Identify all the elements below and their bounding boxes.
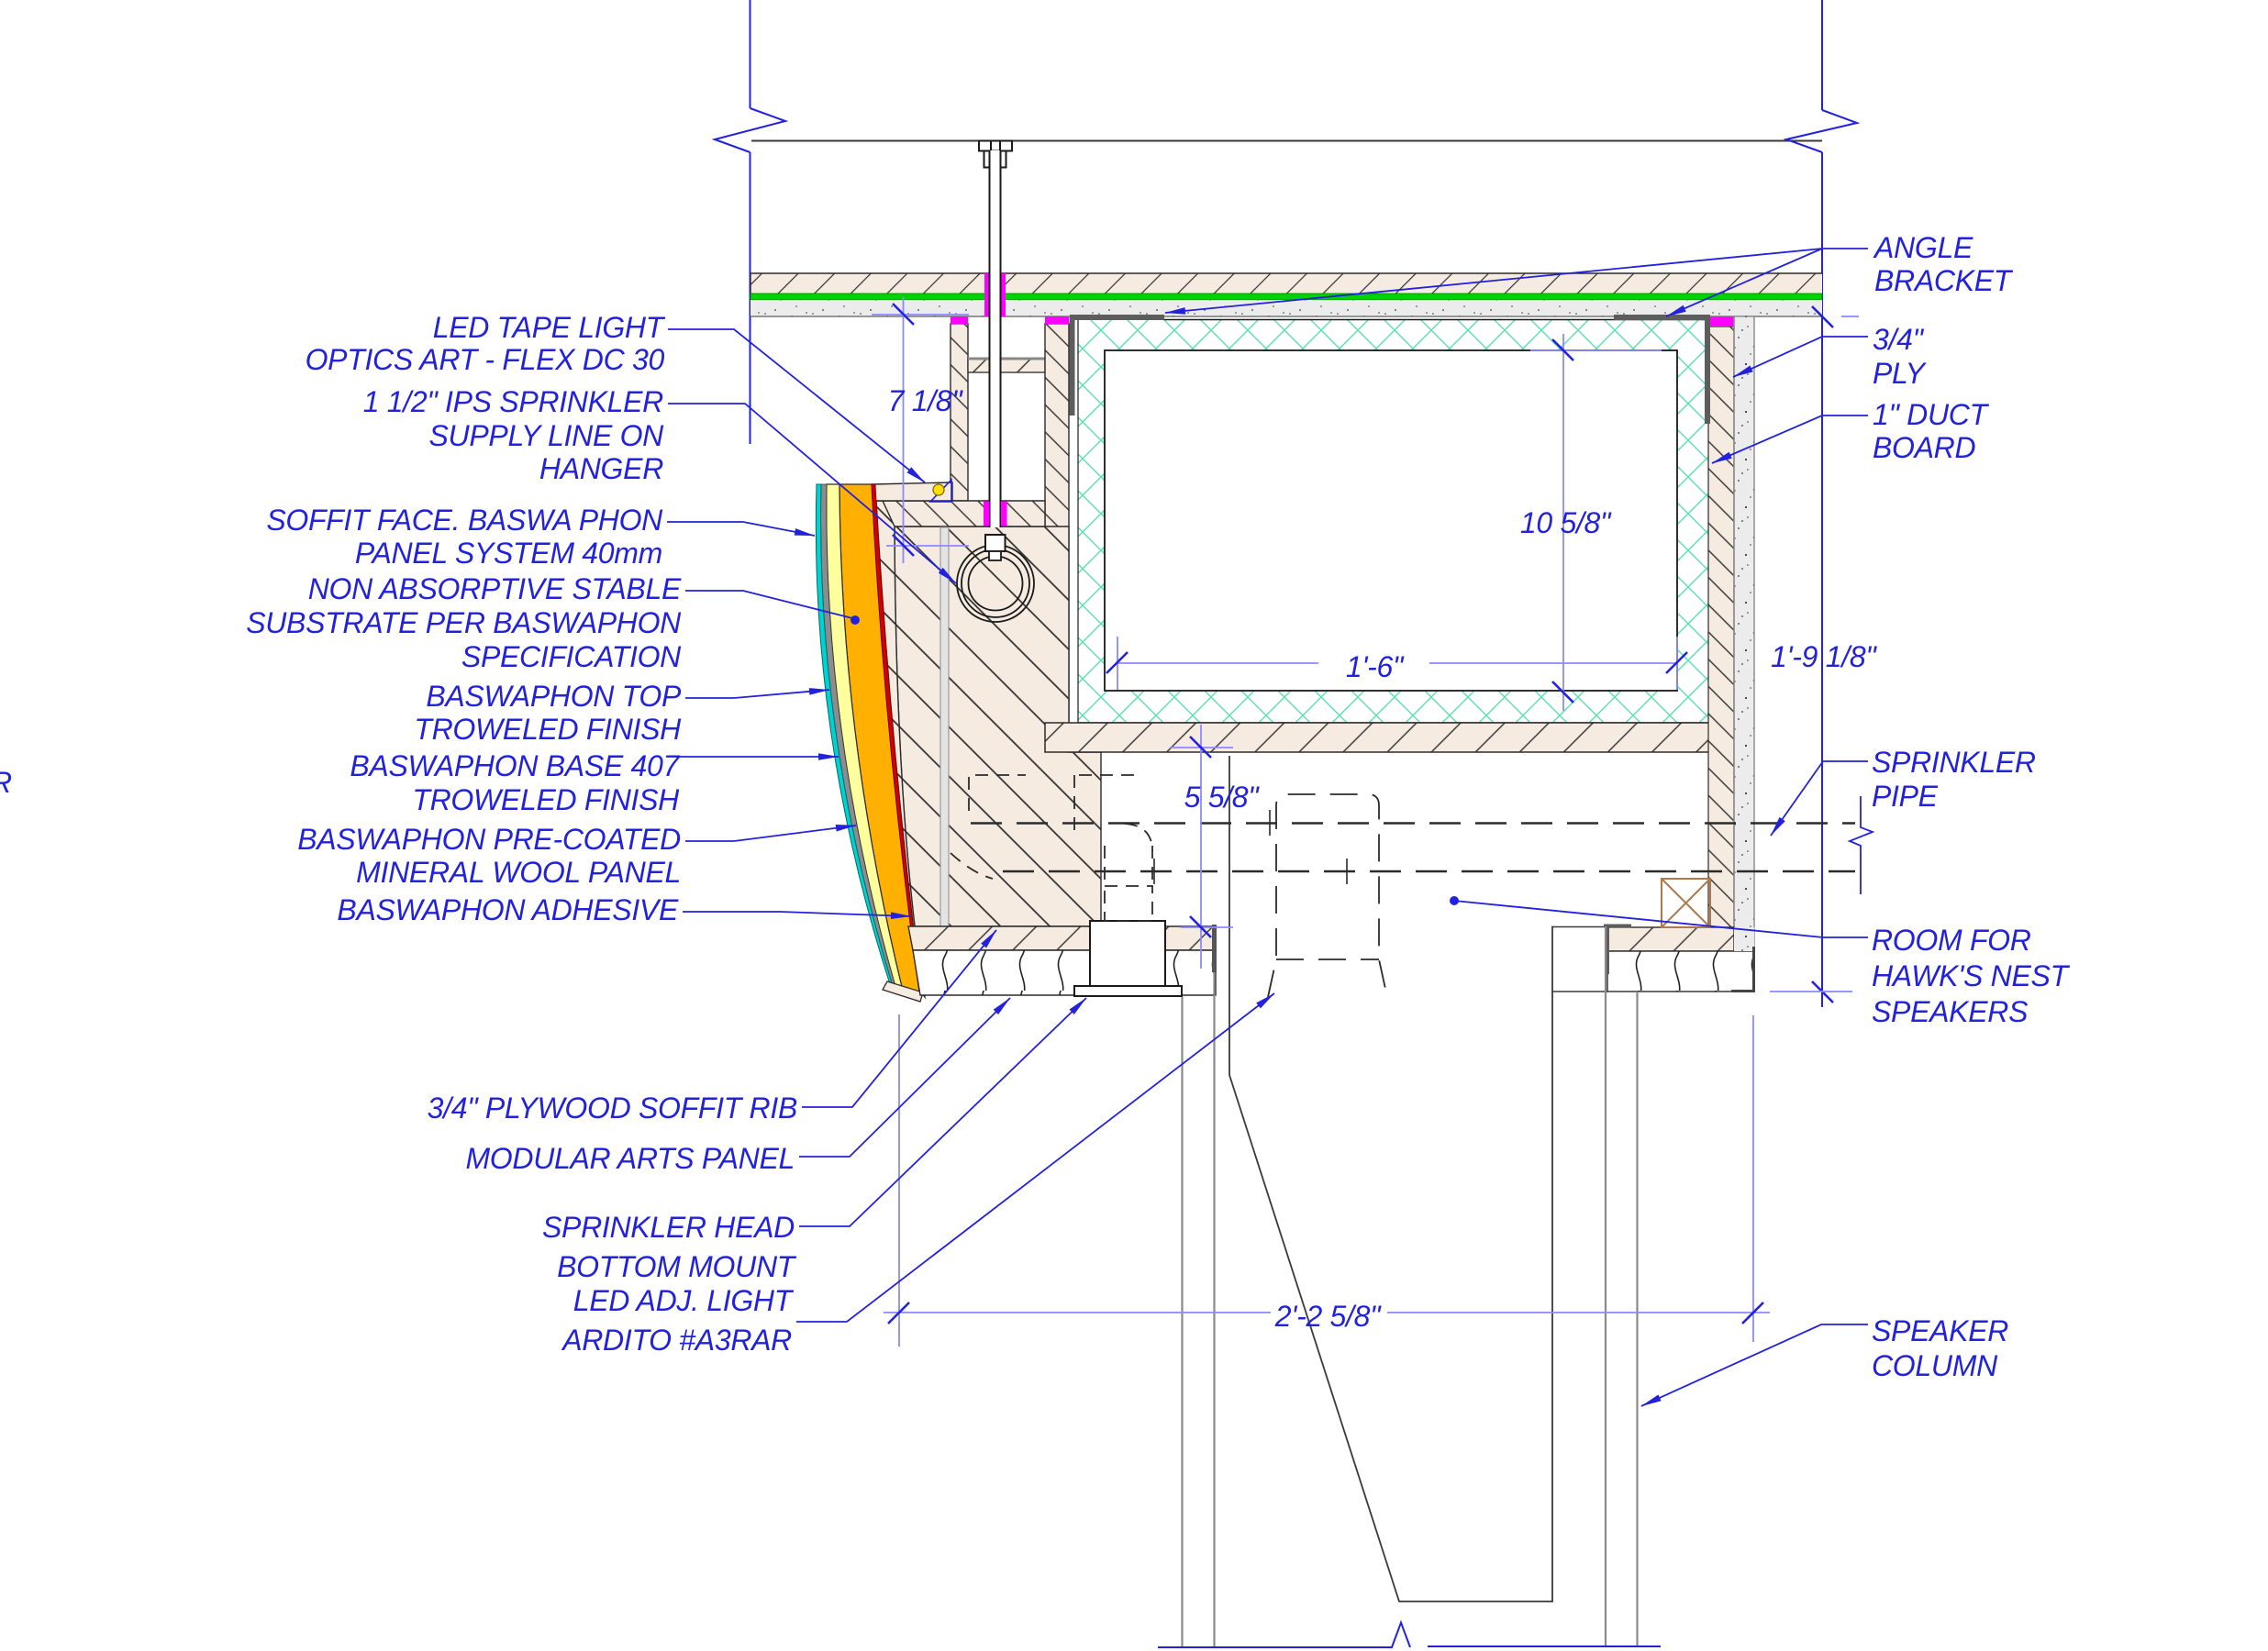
svg-text:1 1/2" IPS SPRINKLER: 1 1/2" IPS SPRINKLER: [363, 385, 663, 418]
svg-text:HAWK'S NEST: HAWK'S NEST: [1872, 959, 2071, 992]
svg-text:PANEL SYSTEM 40mm: PANEL SYSTEM 40mm: [355, 537, 662, 570]
svg-text:10 5/8": 10 5/8": [1520, 506, 1612, 539]
svg-text:1'-6": 1'-6": [1346, 650, 1405, 683]
svg-text:R: R: [0, 766, 12, 799]
svg-text:BOTTOM MOUNT: BOTTOM MOUNT: [557, 1250, 797, 1283]
svg-text:NON ABSORPTIVE STABLE: NON ABSORPTIVE STABLE: [308, 572, 682, 605]
svg-text:1" DUCT: 1" DUCT: [1873, 398, 1990, 431]
svg-text:SUBSTRATE PER BASWAPHON: SUBSTRATE PER BASWAPHON: [246, 606, 682, 639]
svg-text:BASWAPHON TOP: BASWAPHON TOP: [426, 680, 682, 713]
svg-text:PLY: PLY: [1873, 357, 1928, 390]
svg-text:1'-9 1/8": 1'-9 1/8": [1771, 640, 1877, 673]
svg-text:SPRINKLER HEAD: SPRINKLER HEAD: [542, 1211, 795, 1244]
svg-text:COLUMN: COLUMN: [1872, 1349, 1998, 1382]
svg-text:3/4" PLYWOOD SOFFIT RIB: 3/4" PLYWOOD SOFFIT RIB: [428, 1091, 797, 1125]
svg-text:3/4": 3/4": [1873, 323, 1925, 356]
svg-text:ARDITO #A3RAR: ARDITO #A3RAR: [561, 1324, 792, 1357]
svg-text:2'-2 5/8": 2'-2 5/8": [1274, 1300, 1382, 1333]
svg-text:TROWELED FINISH: TROWELED FINISH: [412, 783, 680, 816]
svg-text:BASWAPHON BASE 407: BASWAPHON BASE 407: [350, 749, 680, 782]
svg-text:SPEAKERS: SPEAKERS: [1872, 995, 2028, 1028]
svg-text:TROWELED FINISH: TROWELED FINISH: [414, 713, 682, 746]
svg-text:BRACKET: BRACKET: [1874, 264, 2014, 297]
svg-text:MODULAR ARTS PANEL: MODULAR ARTS PANEL: [465, 1142, 795, 1175]
svg-text:SPECIFICATION: SPECIFICATION: [461, 640, 682, 673]
svg-text:ANGLE: ANGLE: [1873, 231, 1973, 264]
svg-text:MINERAL WOOL PANEL: MINERAL WOOL PANEL: [356, 856, 681, 889]
svg-text:BASWAPHON PRE-COATED: BASWAPHON PRE-COATED: [297, 823, 681, 856]
svg-text:PIPE: PIPE: [1872, 780, 1939, 813]
svg-text:BOARD: BOARD: [1873, 431, 1975, 464]
svg-text:5 5/8": 5 5/8": [1184, 781, 1261, 814]
svg-text:LED ADJ. LIGHT: LED ADJ. LIGHT: [573, 1284, 795, 1317]
svg-text:7 1/8": 7 1/8": [888, 384, 964, 417]
svg-text:SPRINKLER: SPRINKLER: [1872, 746, 2036, 779]
svg-text:SPEAKER: SPEAKER: [1872, 1314, 2008, 1347]
svg-text:SUPPLY LINE ON: SUPPLY LINE ON: [429, 419, 665, 452]
svg-text:SOFFIT FACE. BASWA PHON: SOFFIT FACE. BASWA PHON: [266, 504, 663, 537]
svg-text:HANGER: HANGER: [539, 452, 663, 485]
svg-text:ROOM FOR: ROOM FOR: [1872, 924, 2031, 957]
svg-text:LED TAPE LIGHT: LED TAPE LIGHT: [433, 311, 666, 344]
svg-text:OPTICS ART - FLEX DC 30: OPTICS ART - FLEX DC 30: [306, 343, 665, 376]
svg-text:BASWAPHON ADHESIVE: BASWAPHON ADHESIVE: [337, 893, 679, 926]
